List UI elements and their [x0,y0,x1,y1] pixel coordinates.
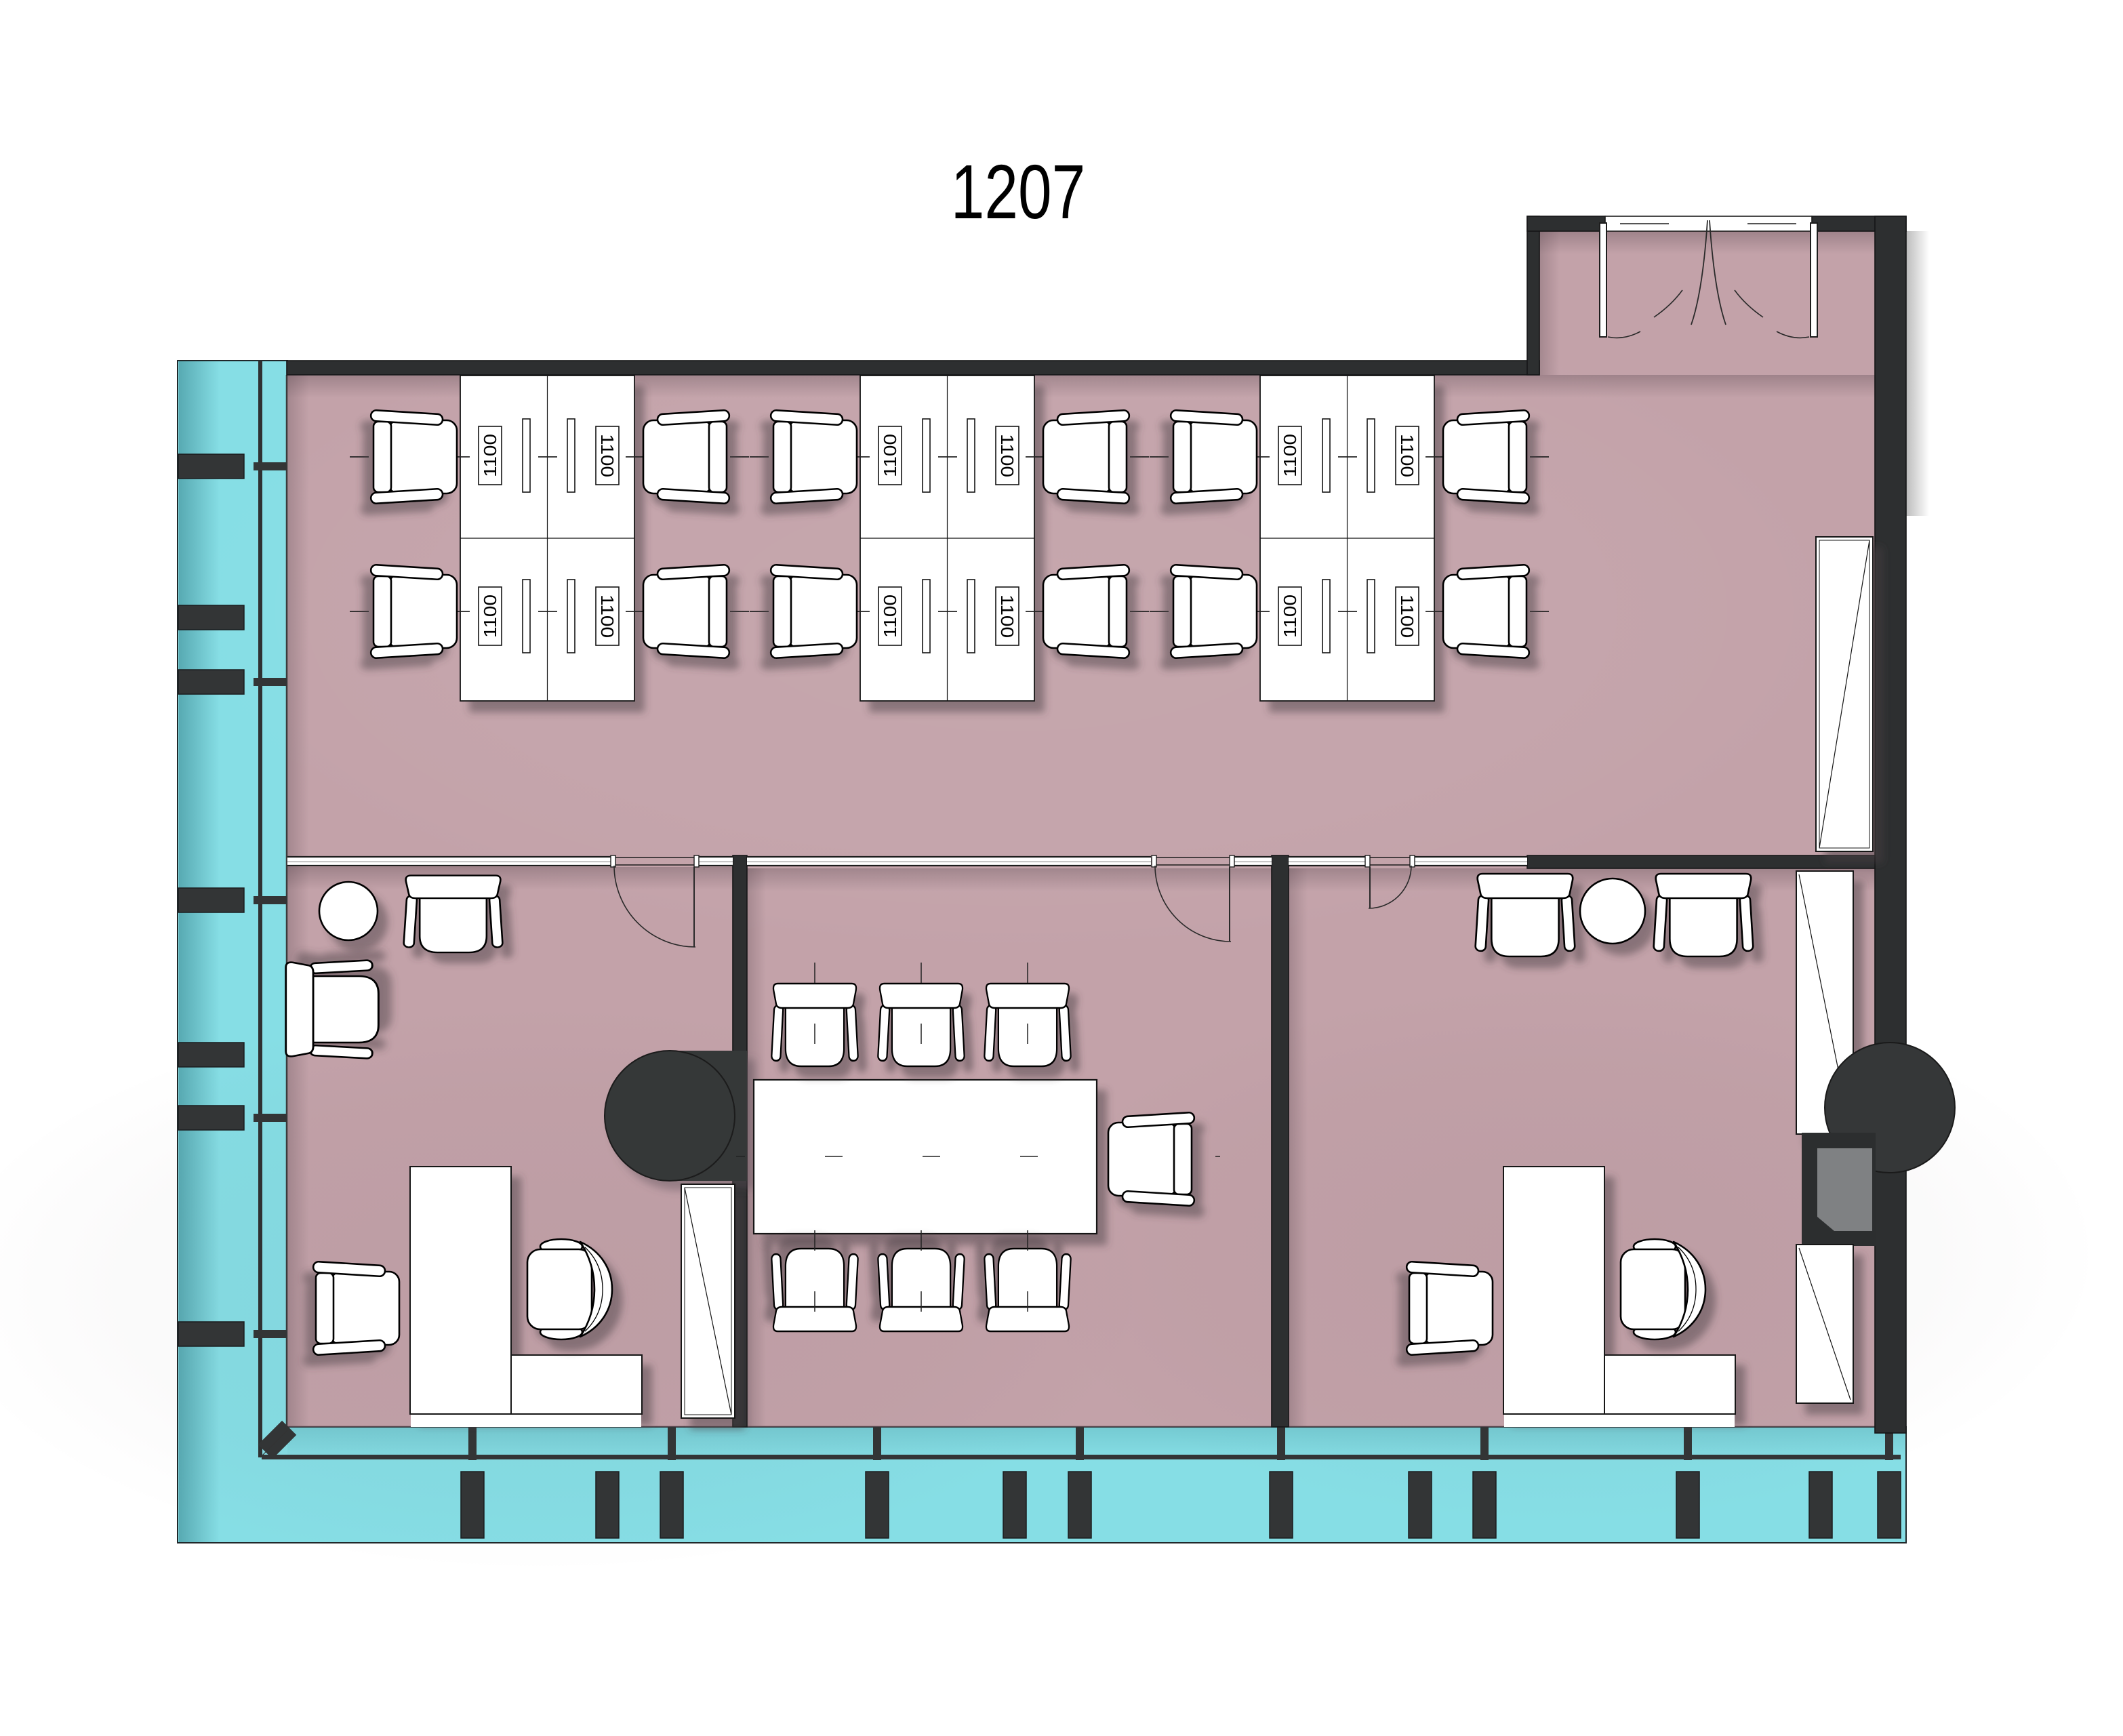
svg-text:1100: 1100 [880,594,900,638]
svg-text:1100: 1100 [1397,594,1417,638]
svg-text:1100: 1100 [1280,434,1300,477]
svg-text:1100: 1100 [1280,594,1300,638]
svg-text:1100: 1100 [880,434,900,477]
svg-text:1100: 1100 [480,594,500,638]
svg-text:1100: 1100 [597,434,618,477]
svg-text:1100: 1100 [597,594,618,638]
svg-text:1100: 1100 [997,594,1017,638]
svg-text:1100: 1100 [480,434,500,477]
svg-text:1100: 1100 [997,434,1017,477]
svg-text:1207: 1207 [951,149,1086,235]
svg-text:1100: 1100 [1397,434,1417,477]
